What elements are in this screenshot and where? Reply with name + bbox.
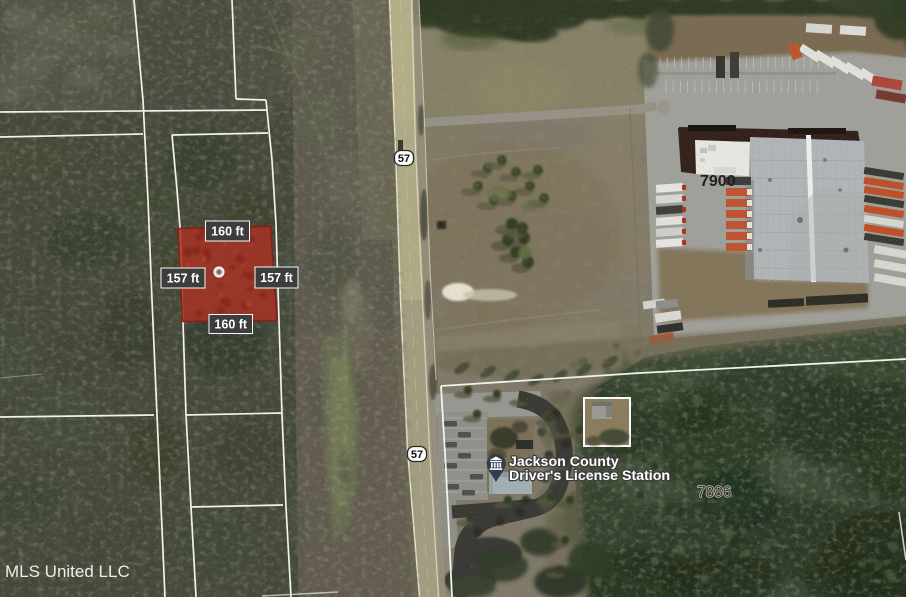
svg-text:57: 57	[398, 153, 410, 165]
svg-text:157 ft: 157 ft	[260, 271, 293, 285]
svg-text:57: 57	[411, 449, 423, 461]
svg-text:7886: 7886	[697, 484, 731, 501]
svg-text:157 ft: 157 ft	[167, 271, 200, 285]
svg-text:MLS United LLC: MLS United LLC	[5, 562, 130, 581]
svg-text:160 ft: 160 ft	[214, 317, 247, 331]
svg-text:160 ft: 160 ft	[211, 224, 244, 238]
svg-text:Driver's License Station: Driver's License Station	[509, 468, 670, 484]
